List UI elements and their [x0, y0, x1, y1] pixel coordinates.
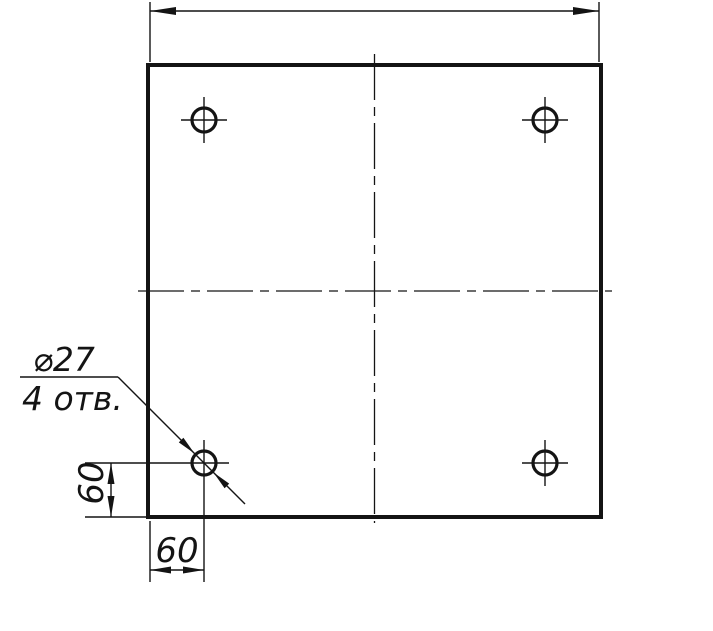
dimension-value-vertical: 60 [72, 461, 112, 504]
dimension-value-horizontal: 60 [155, 531, 198, 571]
hole-bottom-right [522, 440, 568, 486]
holes-count-label: 4 отв. [22, 379, 123, 418]
arrowhead-right-icon [573, 7, 599, 15]
dimension-hole-offset-horizontal: 60 [150, 521, 204, 582]
technical-drawing-canvas: ⌀27 4 отв. 60 60 [0, 0, 713, 631]
leader-arrowhead-upper-icon [179, 438, 195, 454]
dimension-top-width [150, 2, 599, 62]
arrowhead-left-icon [150, 7, 176, 15]
leader-arrowhead-lower-icon [214, 473, 230, 489]
diameter-label: ⌀27 [33, 340, 95, 379]
hole-top-right [522, 97, 568, 143]
dimension-hole-offset-vertical: 60 [72, 461, 147, 517]
hole-top-left [181, 97, 227, 143]
diameter-callout: ⌀27 4 отв. [20, 340, 245, 504]
